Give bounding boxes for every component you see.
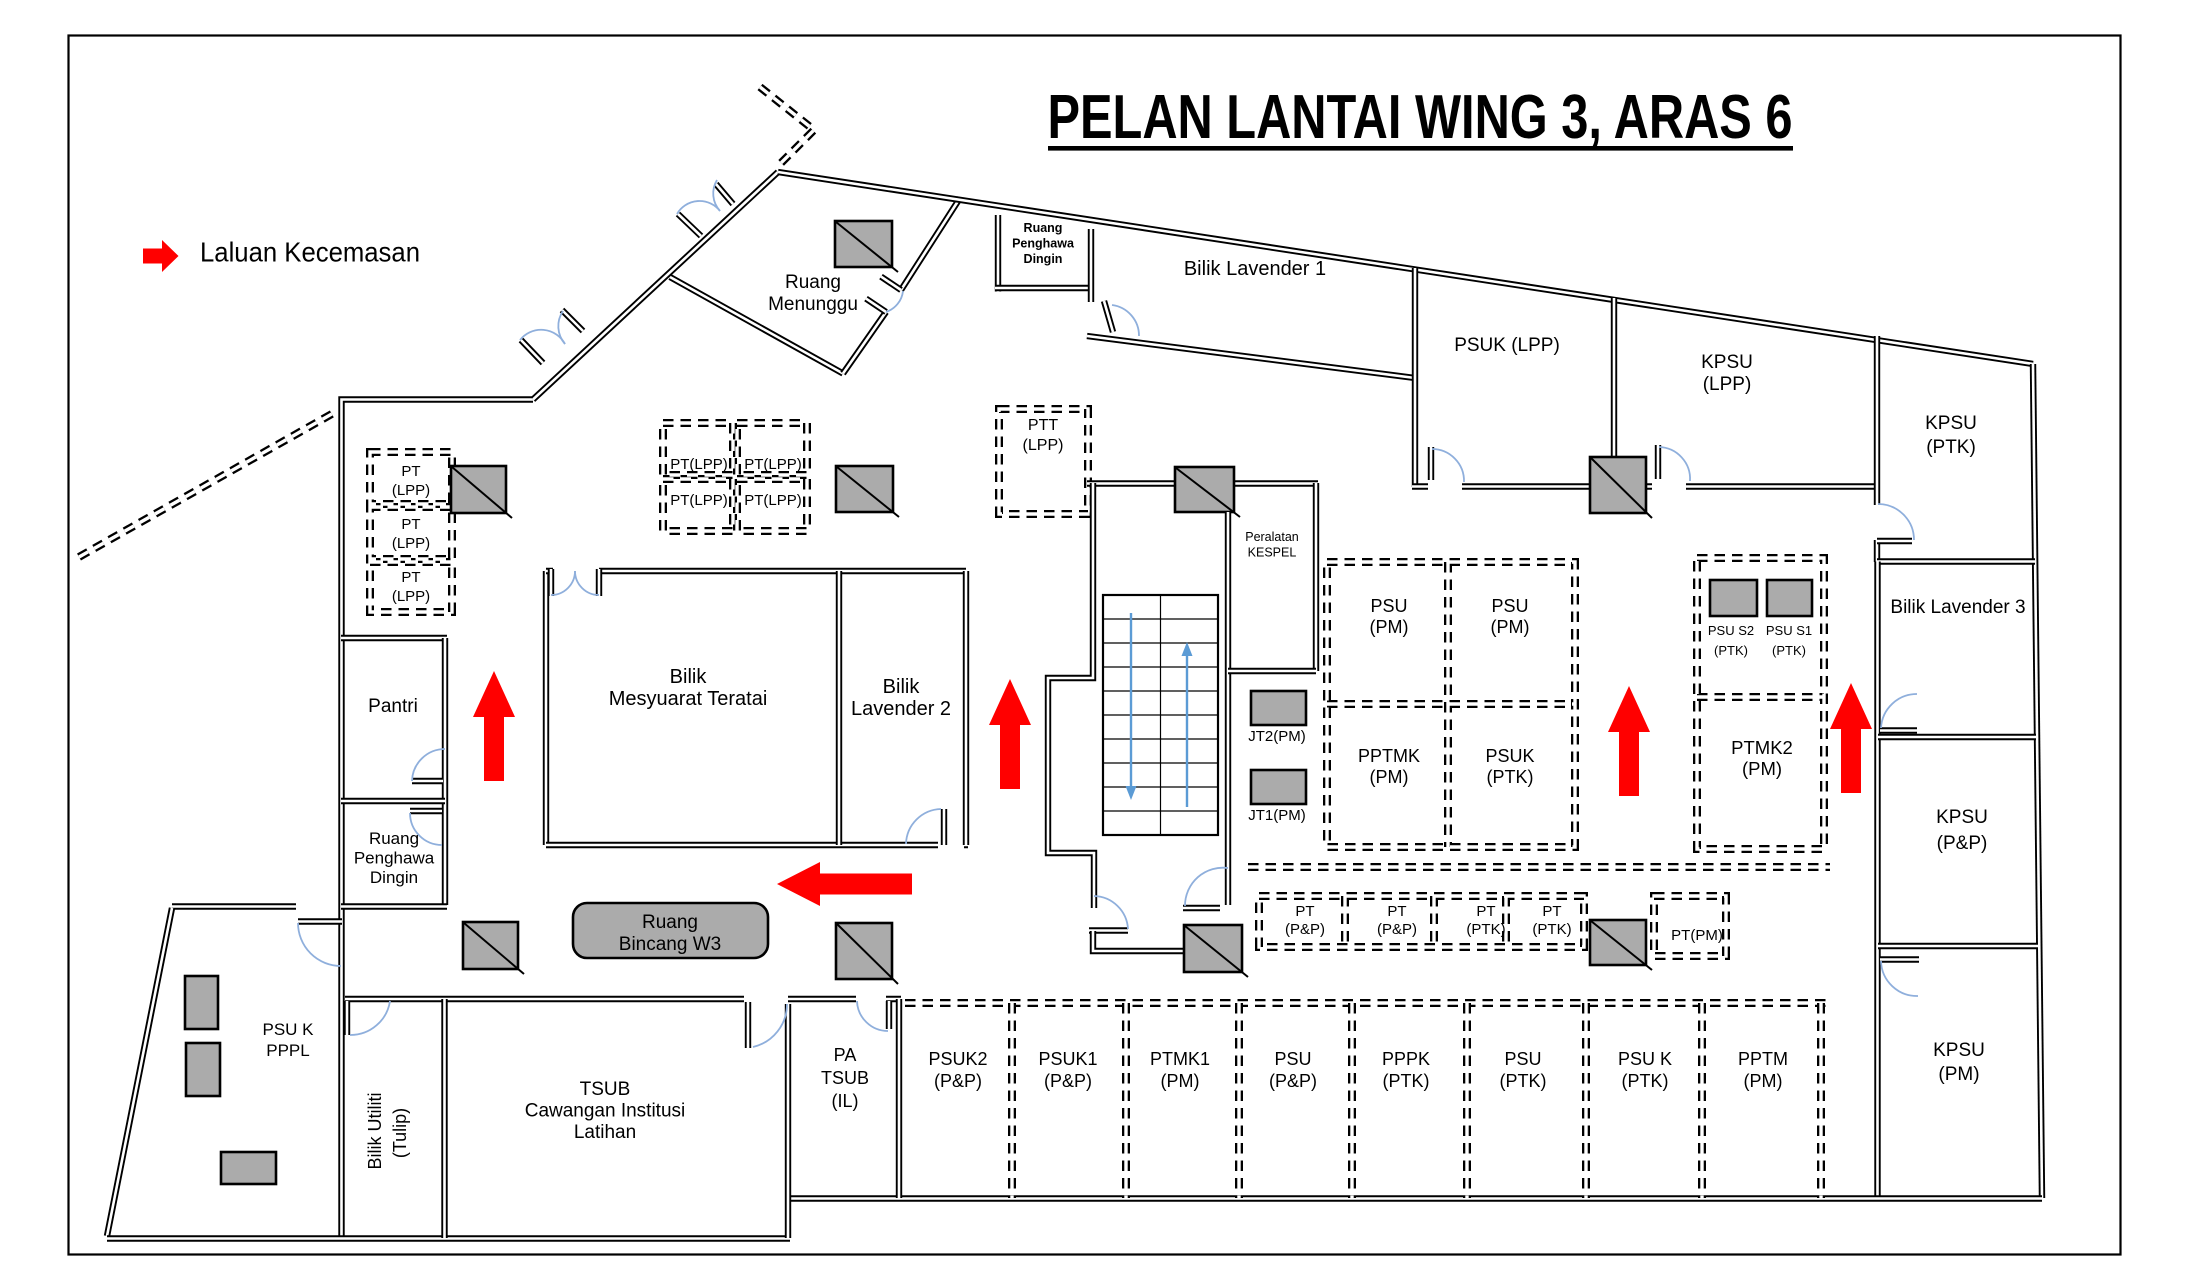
svg-text:PPPL: PPPL <box>266 1041 309 1060</box>
svg-text:PPPK: PPPK <box>1382 1049 1430 1069</box>
svg-text:Lavender 2: Lavender 2 <box>851 698 951 720</box>
svg-text:KPSU: KPSU <box>1925 413 1977 434</box>
svg-text:PSUK2: PSUK2 <box>928 1049 987 1069</box>
svg-text:Bilik Lavender 1: Bilik Lavender 1 <box>1184 258 1326 280</box>
svg-text:PPTM: PPTM <box>1738 1049 1788 1069</box>
svg-text:PSU K: PSU K <box>1618 1049 1672 1069</box>
svg-text:Peralatan: Peralatan <box>1245 530 1299 544</box>
svg-text:JT2(PM): JT2(PM) <box>1248 728 1306 745</box>
svg-text:(Tulip): (Tulip) <box>390 1108 410 1158</box>
svg-text:PSU: PSU <box>1370 596 1407 616</box>
svg-text:JT1(PM): JT1(PM) <box>1248 807 1306 824</box>
svg-text:(PTK): (PTK) <box>1383 1071 1430 1091</box>
svg-text:Pantri: Pantri <box>368 696 418 717</box>
svg-text:Dingin: Dingin <box>370 868 418 887</box>
svg-text:(P&P): (P&P) <box>1937 833 1988 854</box>
svg-text:(P&P): (P&P) <box>1269 1071 1317 1091</box>
svg-text:(P&P): (P&P) <box>934 1071 982 1091</box>
svg-text:PT(LPP): PT(LPP) <box>670 456 728 473</box>
svg-text:PTMK2: PTMK2 <box>1731 737 1793 758</box>
svg-text:PSU S1: PSU S1 <box>1766 623 1812 638</box>
svg-text:(P&P): (P&P) <box>1285 921 1325 938</box>
svg-text:Cawangan Institusi: Cawangan Institusi <box>525 1101 686 1122</box>
svg-text:PPTMK: PPTMK <box>1358 746 1420 766</box>
svg-text:Dingin: Dingin <box>1024 252 1063 266</box>
svg-text:(PTK): (PTK) <box>1466 921 1505 938</box>
svg-text:Bilik Utiliti: Bilik Utiliti <box>365 1092 385 1169</box>
svg-text:Ruang: Ruang <box>785 272 841 293</box>
svg-text:Ruang: Ruang <box>369 829 419 848</box>
svg-text:Ruang: Ruang <box>642 912 698 933</box>
svg-text:PT: PT <box>1387 903 1406 920</box>
svg-text:TSUB: TSUB <box>580 1079 631 1100</box>
svg-text:PTMK1: PTMK1 <box>1150 1049 1210 1069</box>
svg-text:PT(LPP): PT(LPP) <box>670 492 728 509</box>
svg-text:(PM): (PM) <box>1161 1071 1200 1091</box>
svg-text:Penghawa: Penghawa <box>354 849 435 868</box>
svg-text:(PM): (PM) <box>1742 758 1782 779</box>
svg-text:PT(LPP): PT(LPP) <box>744 492 802 509</box>
svg-text:(IL): (IL) <box>832 1091 859 1111</box>
svg-text:(PM): (PM) <box>1938 1064 1979 1085</box>
svg-text:PT: PT <box>401 463 420 480</box>
svg-text:PSU S2: PSU S2 <box>1708 623 1754 638</box>
svg-text:Bincang W3: Bincang W3 <box>619 934 721 955</box>
svg-text:Menunggu: Menunggu <box>768 294 858 315</box>
svg-text:PSU: PSU <box>1504 1049 1541 1069</box>
svg-text:(PTK): (PTK) <box>1772 643 1806 658</box>
svg-text:PT(PM): PT(PM) <box>1671 927 1723 944</box>
svg-text:KPSU: KPSU <box>1933 1040 1985 1061</box>
svg-text:PSUK1: PSUK1 <box>1038 1049 1097 1069</box>
svg-text:Bilik: Bilik <box>883 676 921 698</box>
svg-text:PTT: PTT <box>1028 417 1058 434</box>
svg-text:(PM): (PM) <box>1370 767 1409 787</box>
svg-text:Bilik: Bilik <box>670 666 708 688</box>
svg-text:(LPP): (LPP) <box>1703 374 1752 395</box>
svg-text:(PM): (PM) <box>1744 1071 1783 1091</box>
svg-text:(LPP): (LPP) <box>1023 437 1064 454</box>
svg-text:PT(LPP): PT(LPP) <box>744 456 802 473</box>
svg-text:(LPP): (LPP) <box>392 535 430 552</box>
svg-text:Bilik Lavender 3: Bilik Lavender 3 <box>1890 597 2025 618</box>
svg-text:(PM): (PM) <box>1491 617 1530 637</box>
svg-text:(LPP): (LPP) <box>392 588 430 605</box>
svg-text:(PTK): (PTK) <box>1532 921 1571 938</box>
svg-text:KPSU: KPSU <box>1936 807 1988 828</box>
svg-text:PSUK (LPP): PSUK (LPP) <box>1454 335 1560 356</box>
svg-text:Mesyuarat Teratai: Mesyuarat Teratai <box>609 688 768 710</box>
svg-text:(PTK): (PTK) <box>1622 1071 1669 1091</box>
svg-text:(LPP): (LPP) <box>392 482 430 499</box>
svg-text:TSUB: TSUB <box>821 1068 869 1088</box>
svg-text:PT: PT <box>1295 903 1314 920</box>
svg-text:KESPEL: KESPEL <box>1248 546 1297 560</box>
svg-text:PT: PT <box>401 516 420 533</box>
svg-text:Laluan Kecemasan: Laluan Kecemasan <box>200 237 420 268</box>
svg-text:Ruang: Ruang <box>1024 221 1063 235</box>
svg-text:PSU: PSU <box>1491 596 1528 616</box>
svg-text:PSU: PSU <box>1274 1049 1311 1069</box>
svg-text:PT: PT <box>1542 903 1561 920</box>
svg-text:PT: PT <box>401 569 420 586</box>
svg-text:(PTK): (PTK) <box>1926 437 1976 458</box>
svg-text:PSUK: PSUK <box>1485 746 1534 766</box>
svg-text:PT: PT <box>1476 903 1495 920</box>
svg-text:PA: PA <box>834 1045 857 1065</box>
svg-text:PSU K: PSU K <box>262 1020 314 1039</box>
svg-text:(PM): (PM) <box>1370 617 1409 637</box>
svg-text:(PTK): (PTK) <box>1487 767 1534 787</box>
svg-text:(P&P): (P&P) <box>1377 921 1417 938</box>
svg-text:Latihan: Latihan <box>574 1122 636 1143</box>
svg-text:PELAN LANTAI WING 3, ARAS 6: PELAN LANTAI WING 3, ARAS 6 <box>1048 83 1793 152</box>
svg-text:KPSU: KPSU <box>1701 352 1753 373</box>
svg-text:(PTK): (PTK) <box>1500 1071 1547 1091</box>
svg-text:Penghawa: Penghawa <box>1012 237 1075 251</box>
svg-text:(PTK): (PTK) <box>1714 643 1748 658</box>
svg-text:(P&P): (P&P) <box>1044 1071 1092 1091</box>
